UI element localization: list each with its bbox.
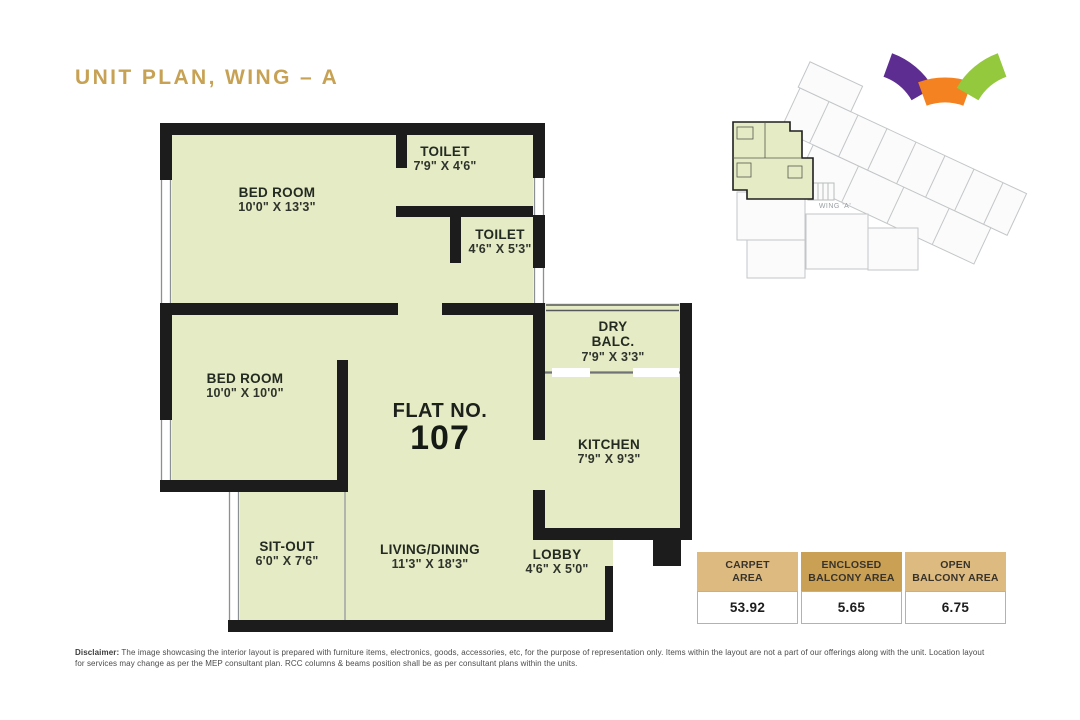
wall-toilet-divider [396,206,545,217]
disclaimer-text: The image showcasing the interior layout… [75,648,984,668]
wall-mid-right [442,303,545,315]
room-name: BED ROOM [207,371,284,386]
areas-column-open-balcony: OPEN BALCONY AREA 6.75 [905,552,1006,624]
header-line: CARPET [725,559,769,572]
room-sitout: SIT-OUT 6'0" X 7'6" [255,539,318,568]
arc-segment-purple [888,65,923,94]
arc-segment-orange [922,90,967,94]
window-right-toilet1 [533,178,545,215]
areas-header-carpet: CARPET AREA [697,552,798,591]
room-toilet-1: TOILET 7'9" X 4'6" [413,144,476,173]
arc-segment-green [968,65,1003,94]
areas-table: CARPET AREA 53.92 ENCLOSED BALCONY AREA … [697,552,1006,624]
room-kitchen: KITCHEN 7'9" X 9'3" [577,437,640,466]
wall-kitchen-left-upper [533,315,545,440]
room-dimension: 10'0" X 10'0" [206,386,283,400]
wall-entrance-stub [653,540,681,566]
header-line: AREA [732,572,763,585]
wall-kitchen-bottom [533,528,692,540]
disclaimer: Disclaimer: The image showcasing the int… [75,647,993,669]
room-name: TOILET [420,144,470,159]
keyplan: WING 'A' [733,62,1038,278]
keyplan-block [806,214,868,269]
keyplan-block [868,228,918,270]
fill-bedroom2 [160,315,348,492]
room-name: TOILET [475,227,525,242]
wall-left-mid [160,303,172,420]
room-dimension: 6'0" X 7'6" [255,554,318,568]
room-lobby: LOBBY 4'6" X 5'0" [525,547,588,576]
room-name: BED ROOM [239,185,316,200]
room-name: LOBBY [533,547,582,562]
window-left-upper [160,180,172,303]
flat-number: 107 [410,419,470,457]
areas-value-enclosed-balcony: 5.65 [801,591,902,624]
areas-header-open-balcony: OPEN BALCONY AREA [905,552,1006,591]
wall-bedroom2-bottom [160,480,348,492]
keyplan-block [747,240,805,278]
room-dimension: 11'3" X 18'3" [392,557,469,571]
brand-arc [888,65,1002,94]
wall-kitchen-right [680,303,692,540]
wall-mid-left [160,303,398,315]
wall-top [160,123,545,135]
room-dimension: 4'6" X 5'0" [525,562,588,576]
disclaimer-label: Disclaimer: [75,648,119,657]
header-line: BALCONY AREA [912,572,998,585]
room-dimension: 4'6" X 5'3" [468,242,531,256]
room-living-dining: LIVING/DINING 11'3" X 18'3" [380,542,480,571]
room-name: SIT-OUT [259,539,315,554]
areas-value-carpet: 53.92 [697,591,798,624]
areas-header-enclosed-balcony: ENCLOSED BALCONY AREA [801,552,902,591]
wall-bottom [228,620,613,632]
room-toilet-2: TOILET 4'6" X 5'3" [468,227,531,256]
floorplan: BED ROOM 10'0" X 13'3" TOILET 7'9" X 4'6… [160,123,692,632]
header-line: BALCONY AREA [808,572,894,585]
room-name: KITCHEN [578,437,640,452]
room-dimension: 7'9" X 9'3" [577,452,640,466]
room-name: BALC. [592,334,635,349]
window-right-toilet2 [533,268,545,303]
header-line: OPEN [940,559,971,572]
wall-toilet1-stub [396,135,407,168]
wall-left-upper [160,123,172,180]
fill-top-section [160,123,545,315]
keyplan-highlighted-unit [733,122,813,199]
room-name: LIVING/DINING [380,542,480,557]
fill-living [348,315,533,622]
keyplan-wing-label: WING 'A' [819,203,851,210]
brochure-page: UNIT PLAN, WING – A [0,0,1080,720]
window-sitout-left [228,492,240,620]
areas-column-carpet: CARPET AREA 53.92 [697,552,798,624]
areas-column-enclosed-balcony: ENCLOSED BALCONY AREA 5.65 [801,552,902,624]
wall-toilet2-stub [450,217,461,263]
room-dimension: 7'9" X 3'3" [581,350,644,364]
wall-right-toilet2 [533,215,545,268]
room-name: DRY [599,319,628,334]
room-bedroom-2: BED ROOM 10'0" X 10'0" [206,371,283,400]
room-dimension: 7'9" X 4'6" [413,159,476,173]
room-bedroom-1: BED ROOM 10'0" X 13'3" [238,185,315,214]
wall-right-upper [533,123,545,178]
header-line: ENCLOSED [822,559,882,572]
areas-value-open-balcony: 6.75 [905,591,1006,624]
room-dimension: 10'0" X 13'3" [238,200,315,214]
window-left-lower [160,420,172,480]
wall-bedroom2-right [337,360,348,492]
